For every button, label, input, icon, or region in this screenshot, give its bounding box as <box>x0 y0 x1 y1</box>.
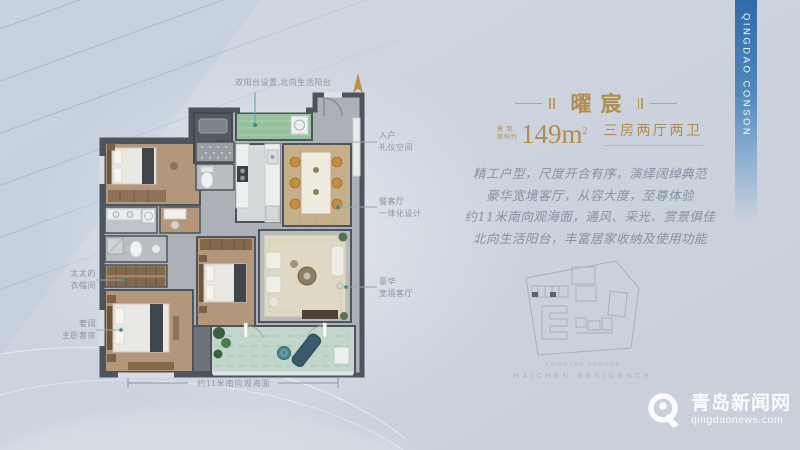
area-row: 建 筑 面积约 149m2 三房两厅两卫 <box>497 120 737 148</box>
kitchen <box>236 144 280 222</box>
floorplan-drawing <box>88 70 378 395</box>
area-prefix: 建 筑 面积约 <box>497 126 518 143</box>
south-balcony <box>211 323 355 376</box>
bedroom-2 <box>105 143 200 205</box>
watermark-name-en: qingdaonews.com <box>691 414 791 426</box>
promo-page: 双阳台设置,北向生活阳台 入户 礼仪空间 餐客厅 一体化设计 豪华 宽境客厅 太… <box>0 0 800 450</box>
watermark-name-cn: 青岛新闻网 <box>691 394 791 414</box>
siteplan-captions: · TSINGTAO CONSON · HAICHEN RESIDENCE <box>497 362 669 380</box>
brand-ribbon-text: QINGDAO CONSON <box>741 13 752 222</box>
plan-title: 曜宸 <box>562 88 631 118</box>
title-ornament-bars <box>549 98 554 109</box>
balcony-glass <box>213 372 353 376</box>
window <box>100 310 105 346</box>
siteplan-sketch <box>518 258 646 360</box>
layout-label: 三房两厅两卫 <box>604 120 703 146</box>
siteplan-highlight-unit <box>550 292 556 297</box>
title-row: 曜宸 <box>478 88 714 118</box>
siteplan-highlight-unit <box>532 292 538 297</box>
dressing-nook <box>160 207 200 233</box>
label-living: 豪华 宽境客厅 <box>379 276 439 299</box>
title-ornament-line <box>650 103 677 104</box>
master-bathroom <box>105 236 167 262</box>
description-block: 精工户型，尺度开合有序，演绎阔绰典范 豪华宽境客厅，从容大度，至尊体验 约11米… <box>424 163 756 249</box>
north-balcony <box>236 108 312 141</box>
label-dimension: 约11米南向观海面 <box>191 378 277 389</box>
watermark-text: 青岛新闻网 qingdaonews.com <box>691 394 791 426</box>
title-ornament-bars <box>638 98 643 109</box>
label-cloakroom: 太太的 衣帽间 <box>58 268 96 291</box>
vanity-area <box>105 207 157 233</box>
guest-bathroom <box>196 142 234 190</box>
description-line: 约11米南向观海面，通风、采光、赏景俱佳 <box>424 206 756 228</box>
area-superscript: 2 <box>583 126 588 137</box>
description-line: 豪华宽境客厅，从容大度，至尊体验 <box>424 185 756 207</box>
label-master-suite: 奢阔 主卧套房 <box>54 318 96 341</box>
balcony-window <box>240 108 306 113</box>
site-watermark: 青岛新闻网 qingdaonews.com <box>645 390 791 430</box>
master-bedroom <box>105 290 193 372</box>
label-north-balcony: 双阳台设置,北向生活阳台 <box>235 77 345 89</box>
siteplan-caption-en-large: HAICHEN RESIDENCE <box>497 371 669 380</box>
area-value: 149m2 <box>521 121 588 148</box>
cloakroom <box>105 265 167 287</box>
brand-ribbon: QINGDAO CONSON <box>735 0 757 222</box>
description-line: 精工户型，尺度开合有序，演绎阔绰典范 <box>424 163 756 185</box>
north-arrow-icon <box>353 73 363 93</box>
living-room <box>259 230 351 322</box>
window <box>118 373 174 378</box>
siteplan-caption-en-small: · TSINGTAO CONSON · <box>497 362 669 368</box>
dining-room <box>283 144 351 226</box>
label-entry: 入户 礼仪空间 <box>379 130 439 153</box>
description-line: 北向生活阳台，丰富居家收纳及使用功能 <box>424 228 756 250</box>
qingdaonews-logo-icon <box>645 390 685 430</box>
window <box>100 156 105 184</box>
title-ornament-line <box>515 103 542 104</box>
bedroom-3 <box>197 237 255 326</box>
